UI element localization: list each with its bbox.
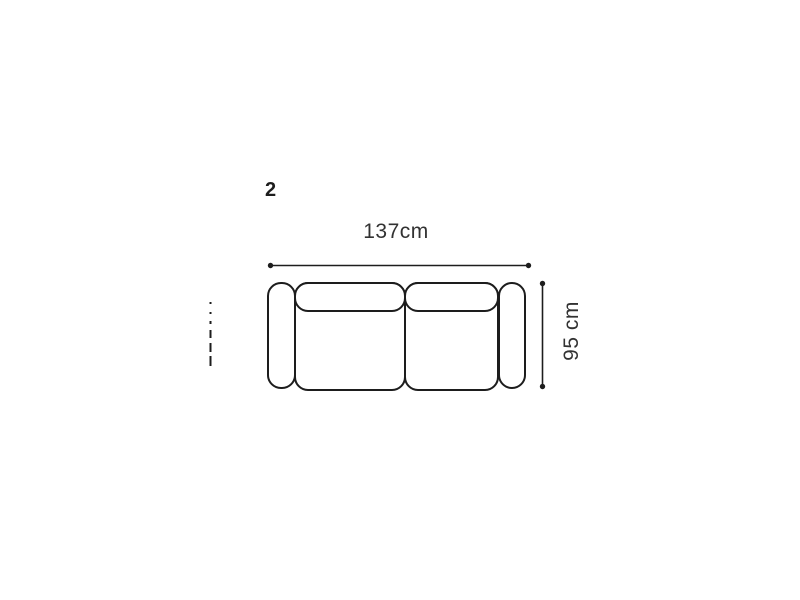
depth-dimension-endpoint-top-dot xyxy=(540,281,545,286)
sofa-left-armrest xyxy=(268,283,295,388)
sofa-top-view-drawing xyxy=(0,0,800,600)
sofa-dimension-diagram: 2 137cm 95 cm xyxy=(0,0,800,600)
sofa-right-back-cushion xyxy=(405,283,498,311)
width-dimension-endpoint-left-dot xyxy=(268,263,273,268)
sofa-outline-group xyxy=(268,283,525,390)
width-dimension-endpoint-right-dot xyxy=(526,263,531,268)
depth-dimension-endpoint-bottom-dot xyxy=(540,384,545,389)
sofa-left-back-cushion xyxy=(295,283,405,311)
sofa-right-armrest xyxy=(499,283,525,388)
